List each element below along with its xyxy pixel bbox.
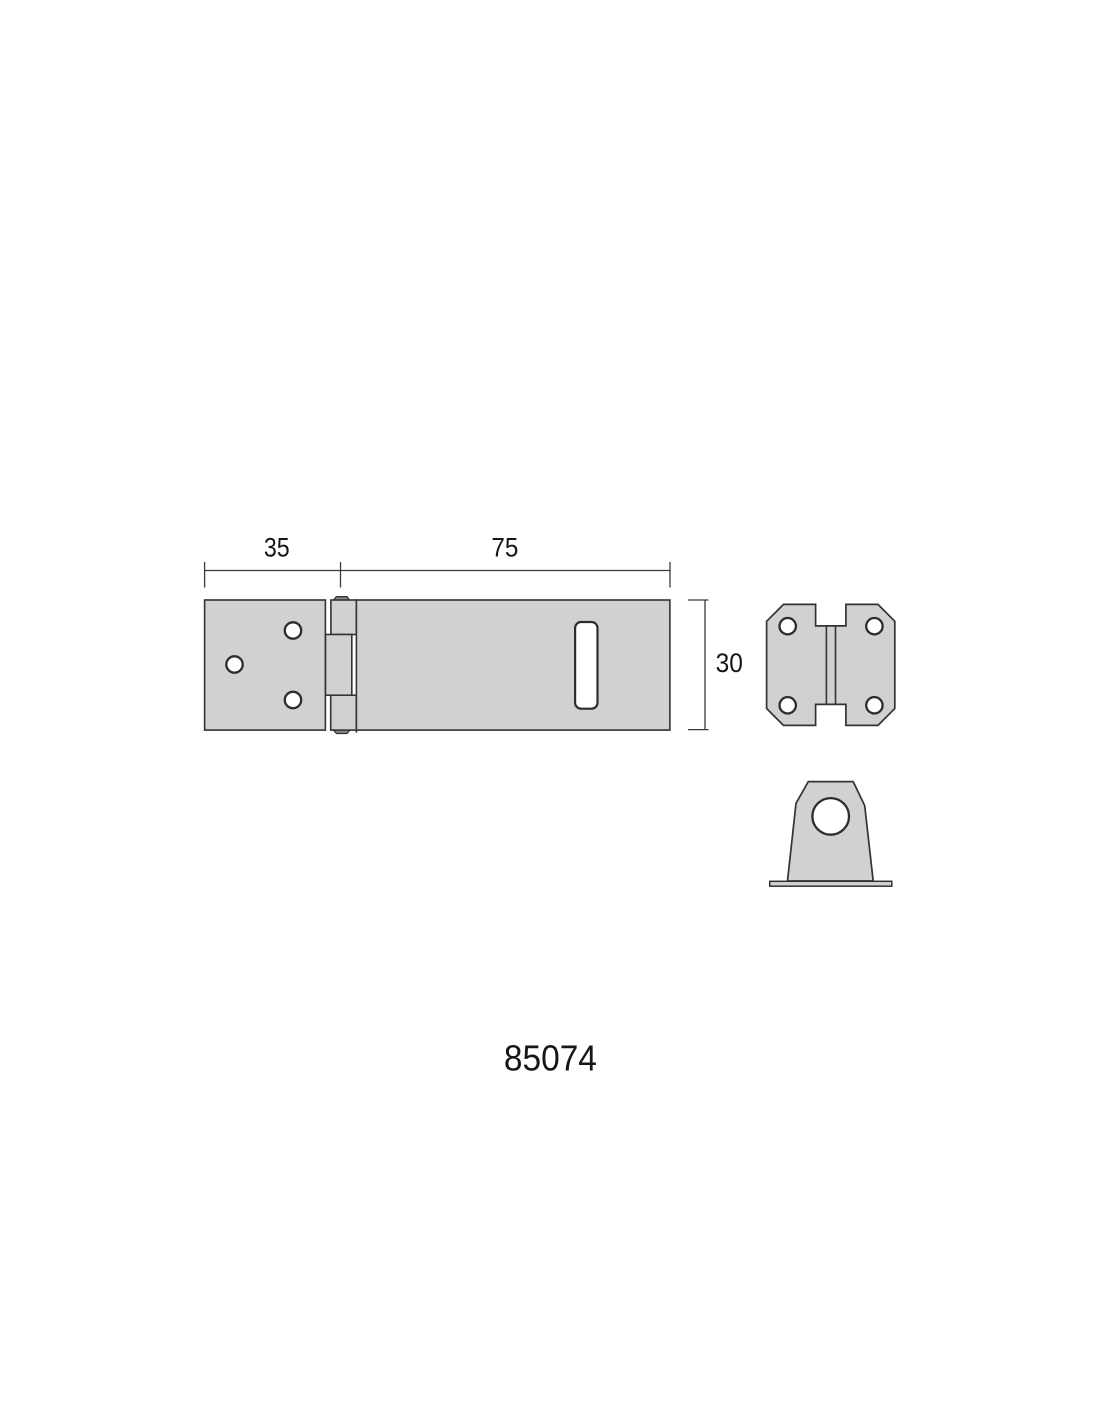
svg-text:35: 35 xyxy=(264,533,290,563)
svg-text:30: 30 xyxy=(716,648,743,678)
svg-text:85074: 85074 xyxy=(504,1038,597,1079)
svg-text:75: 75 xyxy=(491,533,518,563)
